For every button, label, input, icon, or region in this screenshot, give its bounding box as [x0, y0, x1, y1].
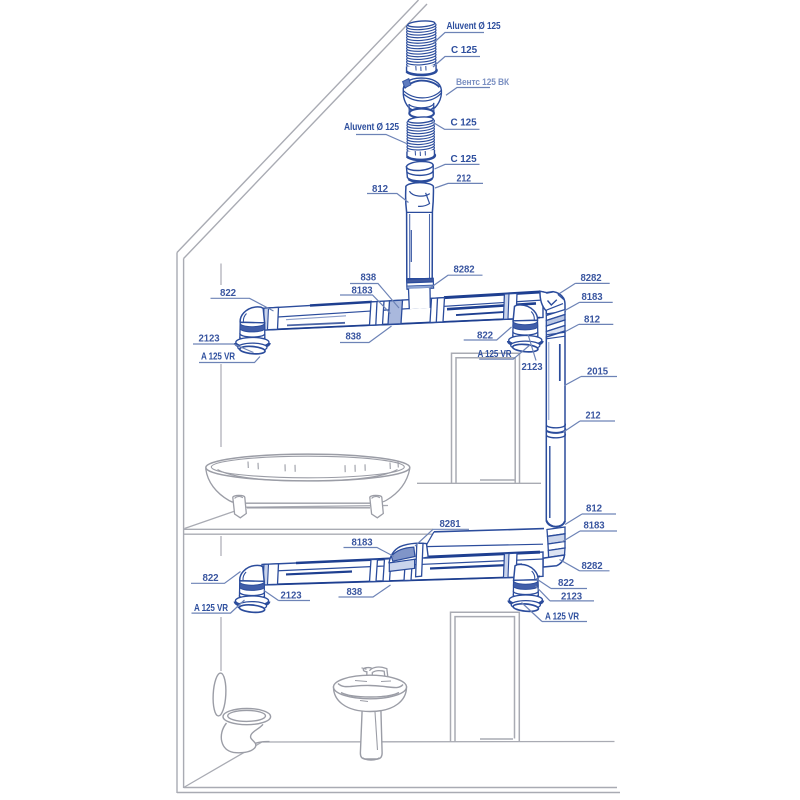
svg-text:2123: 2123 — [522, 362, 544, 373]
svg-text:C 125: C 125 — [451, 45, 478, 56]
svg-text:812: 812 — [586, 504, 603, 515]
svg-text:822: 822 — [558, 578, 575, 589]
svg-text:Вентс 125 ВК: Вентс 125 ВК — [456, 77, 509, 87]
svg-text:8183: 8183 — [582, 292, 604, 303]
svg-text:A 125 VR: A 125 VR — [201, 352, 236, 363]
svg-text:8281: 8281 — [440, 519, 462, 530]
svg-text:8282: 8282 — [582, 561, 604, 572]
svg-text:812: 812 — [584, 315, 601, 326]
svg-text:8282: 8282 — [454, 265, 476, 276]
svg-text:8183: 8183 — [352, 538, 374, 549]
svg-text:812: 812 — [372, 184, 389, 195]
svg-text:2123: 2123 — [199, 334, 221, 345]
svg-text:2123: 2123 — [561, 592, 583, 603]
svg-text:212: 212 — [586, 411, 601, 422]
svg-text:A 125 VR: A 125 VR — [478, 349, 513, 360]
svg-text:8282: 8282 — [581, 273, 603, 284]
svg-text:Aluvent Ø 125: Aluvent Ø 125 — [447, 21, 501, 32]
svg-text:8183: 8183 — [584, 521, 606, 532]
svg-text:838: 838 — [347, 587, 363, 598]
svg-text:C 125: C 125 — [451, 154, 478, 165]
svg-text:822: 822 — [220, 288, 237, 299]
svg-text:2015: 2015 — [587, 367, 609, 378]
svg-text:A 125 VR: A 125 VR — [545, 612, 580, 623]
svg-text:838: 838 — [346, 332, 362, 343]
svg-text:A 125 VR: A 125 VR — [194, 603, 229, 614]
svg-text:C 125: C 125 — [451, 118, 478, 129]
svg-text:8183: 8183 — [352, 286, 374, 297]
svg-text:822: 822 — [203, 573, 220, 584]
svg-text:838: 838 — [361, 273, 377, 284]
svg-text:212: 212 — [457, 174, 472, 185]
svg-text:822: 822 — [477, 331, 494, 342]
svg-text:Aluvent Ø 125: Aluvent Ø 125 — [344, 122, 399, 133]
svg-text:2123: 2123 — [281, 591, 303, 602]
